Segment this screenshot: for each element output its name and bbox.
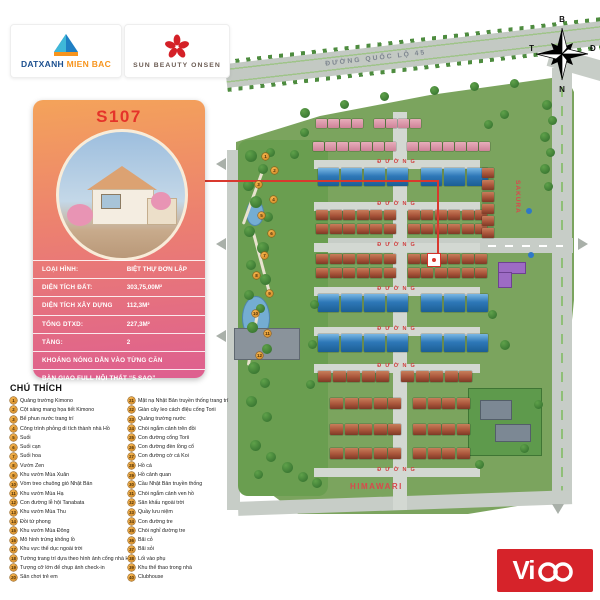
villa-unit[interactable] [374, 119, 385, 128]
villa-unit[interactable] [448, 268, 460, 278]
sports-complex-ground [468, 388, 542, 456]
street-gap [403, 398, 412, 409]
tree-icon [260, 378, 270, 388]
villa-unit[interactable] [330, 268, 342, 278]
legend-item: 5Suối [10, 433, 132, 442]
legend-item: 27Con đường cờ cá Koi [128, 452, 228, 461]
villa-unit[interactable] [428, 448, 441, 459]
villa-unit[interactable] [370, 210, 382, 220]
housing-row [482, 168, 494, 238]
leader-line-horizontal [178, 180, 438, 182]
legend-item: 3Bể phun nước trang trí [10, 415, 132, 424]
villa-unit[interactable] [482, 204, 494, 214]
legend-item: 19Tượng cỡ lớn để chụp ảnh check-in [10, 563, 132, 572]
housing-row [316, 254, 487, 264]
unit-spec-row: TỔNG DTXD:227,3M² [33, 315, 205, 333]
villa-unit[interactable] [421, 334, 442, 352]
legend-item-label: Bãi sỏi [138, 546, 154, 552]
villa-unit[interactable] [384, 224, 396, 234]
villa-unit[interactable] [413, 398, 426, 409]
villa-unit[interactable] [482, 192, 494, 202]
villa-unit[interactable] [455, 142, 466, 151]
tree-icon [500, 340, 510, 350]
villa-unit[interactable] [359, 448, 372, 459]
housing-row [316, 224, 487, 234]
villa-unit[interactable] [370, 224, 382, 234]
housing-row [313, 142, 490, 151]
tree-icon [548, 116, 557, 125]
villa-unit[interactable] [410, 119, 421, 128]
villa-unit[interactable] [313, 142, 324, 151]
villa-unit[interactable] [442, 424, 455, 435]
villa-unit[interactable] [374, 424, 387, 435]
legend-number-badge: 24 [128, 425, 135, 432]
sun-beauty-logo-text: SUN BEAUTY ONSEN [133, 62, 221, 69]
spec-value: 112,3M² [127, 302, 150, 309]
datxanh-triangle-icon [51, 33, 81, 57]
villa-unit[interactable] [421, 294, 442, 312]
road-exit-arrow-left [216, 330, 226, 342]
purple-amenity-building [498, 272, 512, 288]
villa-unit[interactable] [416, 371, 429, 382]
villa-unit[interactable] [428, 424, 441, 435]
park-poi-marker: 5 [258, 212, 265, 219]
villa-unit[interactable] [357, 254, 369, 264]
legend-number-badge: 32 [128, 499, 135, 506]
legend-number-badge: 18 [10, 555, 17, 562]
vico-watermark: Vi [497, 549, 593, 592]
sun-beauty-onsen-logo: SUN BEAUTY ONSEN [124, 24, 230, 78]
villa-unit[interactable] [330, 224, 342, 234]
legend-item: 30Cầu Nhật Bản truyền thống [128, 480, 228, 489]
villa-unit[interactable] [364, 334, 385, 352]
villa-unit[interactable] [448, 210, 460, 220]
legend-number-badge: 20 [10, 574, 17, 581]
legend-item-label: Quảng trường nước [138, 416, 186, 422]
villa-roof-shape [87, 166, 157, 190]
villa-unit[interactable] [401, 371, 414, 382]
legend-item-label: Chòi ngắm cảnh trên đồi [138, 426, 196, 432]
legend-number-badge: 31 [128, 490, 135, 497]
villa-unit[interactable] [387, 334, 408, 352]
tree-icon [310, 300, 319, 309]
indoor-sports-building [480, 400, 512, 420]
villa-unit[interactable] [467, 334, 488, 352]
legend-item-label: Công trình phỏng di tích thành nhà Hồ [20, 426, 110, 432]
legend-number-badge: 3 [10, 416, 17, 423]
tree-icon [244, 226, 255, 237]
tree-icon [300, 128, 309, 137]
tree-icon [246, 260, 256, 270]
street-gap [410, 334, 419, 352]
villa-unit[interactable] [333, 371, 346, 382]
legend-number-badge: 11 [10, 490, 17, 497]
amenity-dot-icon [528, 252, 534, 258]
villa-unit[interactable] [330, 448, 343, 459]
villa-unit[interactable] [462, 254, 474, 264]
villa-unit[interactable] [345, 424, 358, 435]
legend-item: 6Suối cạn [10, 442, 132, 451]
legend-item: 11Khu vườn Mùa Hạ [10, 489, 132, 498]
legend-number-badge: 4 [10, 425, 17, 432]
street-name-label: ĐƯỜNG [318, 363, 478, 369]
tree-icon [262, 412, 272, 422]
villa-unit[interactable] [316, 210, 328, 220]
villa-unit[interactable] [362, 371, 375, 382]
villa-unit[interactable] [413, 424, 426, 435]
park-poi-marker: 3 [255, 181, 262, 188]
tree-icon [484, 120, 493, 129]
villa-photo [56, 129, 188, 261]
villa-unit[interactable] [316, 254, 328, 264]
villa-unit[interactable] [428, 398, 441, 409]
villa-unit[interactable] [457, 448, 470, 459]
spec-value: 303,75,00M² [127, 284, 162, 291]
housing-row [318, 168, 488, 186]
legend-item: 16Mô hình trứng khổng lồ [10, 535, 132, 544]
legend-number-badge: 35 [128, 527, 135, 534]
tree-icon [520, 444, 529, 453]
street-name-label: ĐƯỜNG [318, 201, 478, 207]
tree-icon [254, 470, 263, 479]
villa-unit[interactable] [374, 448, 387, 459]
villa-unit[interactable] [388, 398, 401, 409]
villa-unit[interactable] [341, 294, 362, 312]
villa-unit[interactable] [467, 142, 478, 151]
legend-item-label: Con đường tre [138, 519, 173, 525]
compass-north-label: B [559, 15, 565, 24]
villa-unit[interactable] [482, 228, 494, 238]
villa-unit[interactable] [457, 424, 470, 435]
villa-unit[interactable] [444, 294, 465, 312]
legend-item: 13Khu vườn Mùa Thu [10, 508, 132, 517]
villa-unit[interactable] [318, 371, 331, 382]
spec-value: 227,3M² [127, 321, 150, 328]
compass-west-label: T [529, 44, 534, 53]
villa-unit[interactable] [421, 210, 433, 220]
compass-rose: B N Đ T [526, 10, 598, 98]
villa-unit[interactable] [388, 424, 401, 435]
villa-unit[interactable] [349, 142, 360, 151]
legend-item-label: Chòi ngắm cảnh ven hồ [138, 491, 194, 497]
legend-number-badge: 7 [10, 453, 17, 460]
legend-title: CHÚ THÍCH [10, 383, 246, 393]
tree-icon [290, 150, 299, 159]
compass-south-label: N [559, 85, 565, 94]
street-gap [410, 294, 419, 312]
vico-text: Vi [512, 555, 534, 586]
legend-item-label: Hồ cá [138, 463, 152, 469]
legend-item-label: Cầu Nhật Bản truyền thống [138, 481, 202, 487]
legend-item-label: Giàn cây leo cách điệu cổng Torii [138, 407, 216, 413]
villa-unit[interactable] [357, 210, 369, 220]
legend-number-badge: 8 [10, 462, 17, 469]
legend-item-label: Mô hình trứng khổng lồ [20, 537, 75, 543]
villa-unit[interactable] [357, 224, 369, 234]
spec-value: 2 [127, 339, 131, 346]
villa-unit[interactable] [407, 142, 418, 151]
villa-unit[interactable] [386, 119, 397, 128]
leader-line-vertical [437, 180, 439, 256]
villa-unit[interactable] [482, 168, 494, 178]
legend-item-label: Suối [20, 435, 31, 441]
villa-unit[interactable] [408, 210, 420, 220]
tree-icon [488, 310, 497, 319]
villa-unit[interactable] [359, 424, 372, 435]
villa-unit[interactable] [341, 334, 362, 352]
legend-number-badge: 21 [128, 397, 135, 404]
villa-unit[interactable] [384, 268, 396, 278]
villa-unit[interactable] [316, 224, 328, 234]
villa-unit[interactable] [421, 268, 433, 278]
villa-unit[interactable] [328, 119, 339, 128]
legend-item: 18Tường trang trí dựa theo hình ảnh cổng… [10, 554, 132, 563]
villa-unit[interactable] [419, 142, 430, 151]
spec-label: KHOÁNG NÓNG DẪN VÀO TỪNG CĂN [42, 357, 196, 364]
legend-number-badge: 19 [10, 564, 17, 571]
villa-unit[interactable] [361, 142, 372, 151]
villa-unit[interactable] [384, 210, 396, 220]
legend-item: 10Vòm treo chuông gió Nhật Bản [10, 480, 132, 489]
legend-item: 31Chòi ngắm cảnh ven hồ [128, 489, 228, 498]
tree-icon [430, 86, 439, 95]
legend-item-label: Mặt nạ Nhật Bản truyền thống trang trí [138, 398, 228, 404]
villa-unit[interactable] [374, 398, 387, 409]
street-gap [397, 210, 406, 220]
villa-unit[interactable] [467, 294, 488, 312]
zone-label-sakura: SAKURA [514, 180, 521, 214]
park-poi-marker: 9 [266, 290, 273, 297]
housing-row [318, 334, 488, 352]
villa-unit[interactable] [345, 398, 358, 409]
villa-unit[interactable] [376, 371, 389, 382]
villa-unit[interactable] [388, 448, 401, 459]
villa-unit[interactable] [408, 268, 420, 278]
road-exit-arrow-right [578, 238, 588, 250]
legend-number-badge: 40 [128, 574, 135, 581]
tree-icon [308, 340, 317, 349]
villa-unit[interactable] [387, 294, 408, 312]
villa-unit[interactable] [318, 168, 339, 186]
villa-unit[interactable] [442, 398, 455, 409]
legend-number-badge: 2 [10, 406, 17, 413]
villa-unit[interactable] [421, 224, 433, 234]
selected-unit-marker[interactable] [427, 253, 441, 267]
legend-item-label: Suối cạn [20, 444, 41, 450]
villa-unit[interactable] [384, 254, 396, 264]
villa-unit[interactable] [459, 371, 472, 382]
housing-row [330, 424, 470, 435]
road-exit-arrow-left [216, 238, 226, 250]
villa-unit[interactable] [345, 448, 358, 459]
legend-number-badge: 30 [128, 481, 135, 488]
tree-icon [475, 460, 484, 469]
legend-column-2: 21Mặt nạ Nhật Bản truyền thống trang trí… [128, 396, 228, 582]
tree-icon [244, 290, 254, 300]
pink-tree-shape [67, 204, 93, 226]
zone-label-himawari: HIMAWARI [350, 482, 403, 491]
legend-item: 21Mặt nạ Nhật Bản truyền thống trang trí [128, 396, 228, 405]
legend-number-badge: 9 [10, 472, 17, 479]
unit-spec-row: KHOÁNG NÓNG DẪN VÀO TỪNG CĂN [33, 351, 205, 369]
tree-icon [540, 164, 550, 174]
legend-item-label: Sân chơi trẻ em [20, 574, 58, 580]
tree-icon [266, 452, 276, 462]
villa-unit[interactable] [387, 168, 408, 186]
legend-item: 20Sân chơi trẻ em [10, 573, 132, 582]
legend-item: 2Cột sáng mang họa tiết Kimono [10, 405, 132, 414]
villa-unit[interactable] [445, 371, 458, 382]
tree-icon [540, 132, 550, 142]
park-poi-marker: 1 [262, 153, 269, 160]
datxanh-mien-bac-logo: DATXANH MIEN BAC [10, 24, 122, 78]
legend-item-label: Con đường cờ cá Koi [138, 453, 189, 459]
villa-unit[interactable] [462, 268, 474, 278]
tree-icon [470, 82, 479, 91]
street-gap [397, 254, 406, 264]
villa-window-shape [101, 194, 121, 209]
unit-spec-row: DIỆN TÍCH ĐẤT:303,75,00M² [33, 278, 205, 296]
road-exit-arrow-left [216, 158, 226, 170]
legend-item: 37Bãi sỏi [128, 545, 228, 554]
tree-icon [243, 180, 254, 191]
highway-name-label: ĐƯỜNG QUỐC LỘ 45 [325, 49, 427, 67]
villa-unit[interactable] [343, 254, 355, 264]
legend-item-label: Khu vườn Mùa Hạ [20, 491, 64, 497]
villa-unit[interactable] [337, 142, 348, 151]
villa-unit[interactable] [318, 294, 339, 312]
villa-unit[interactable] [444, 168, 465, 186]
legend-item: 9Khu vườn Mùa Xuân [10, 470, 132, 479]
villa-unit[interactable] [457, 398, 470, 409]
legend-number-badge: 39 [128, 564, 135, 571]
tree-icon [282, 462, 293, 473]
legend-item-label: Khu thể thao trong nhà [138, 565, 192, 571]
tree-icon [250, 196, 262, 208]
villa-unit[interactable] [421, 168, 442, 186]
villa-unit[interactable] [330, 398, 343, 409]
villa-unit[interactable] [316, 268, 328, 278]
villa-unit[interactable] [343, 210, 355, 220]
villa-unit[interactable] [385, 142, 396, 151]
villa-unit[interactable] [325, 142, 336, 151]
villa-unit[interactable] [442, 448, 455, 459]
legend-item-label: Cột sáng mang họa tiết Kimono [20, 407, 94, 413]
tree-icon [500, 110, 509, 119]
legend-number-badge: 38 [128, 555, 135, 562]
villa-unit[interactable] [398, 119, 409, 128]
legend-item-label: Sân khấu ngoài trời [138, 500, 184, 506]
legend-number-badge: 1 [10, 397, 17, 404]
tree-icon [380, 92, 389, 101]
villa-unit[interactable] [370, 268, 382, 278]
legend-item-label: Con đường lễ hội Tanabata [20, 500, 84, 506]
villa-unit[interactable] [435, 268, 447, 278]
street-gap [410, 168, 419, 186]
villa-unit[interactable] [448, 254, 460, 264]
spec-label: BÀN GIAO FULL NỘI THẤT “5 SAO” [42, 375, 196, 382]
villa-unit[interactable] [408, 254, 420, 264]
villa-unit[interactable] [482, 216, 494, 226]
street-gap [403, 448, 412, 459]
unit-spec-row: TẦNG:2 [33, 333, 205, 351]
villa-unit[interactable] [352, 119, 363, 128]
legend-item: 33Quầy lưu niệm [128, 508, 228, 517]
legend-item-label: Con đường cổng Torii [138, 435, 189, 441]
street-name-label: ĐƯỜNG [318, 286, 478, 292]
legend-number-badge: 22 [128, 406, 135, 413]
villa-unit[interactable] [443, 142, 454, 151]
villa-unit[interactable] [343, 268, 355, 278]
spec-value: BIỆT THỰ ĐƠN LẬP [127, 266, 187, 273]
villa-unit[interactable] [373, 142, 384, 151]
legend-item: 7Suối hoa [10, 452, 132, 461]
villa-unit[interactable] [482, 180, 494, 190]
legend-item: 24Chòi ngắm cảnh trên đồi [128, 424, 228, 433]
street-name-label: ĐƯỜNG [318, 159, 478, 165]
villa-unit[interactable] [413, 448, 426, 459]
villa-unit[interactable] [430, 371, 443, 382]
tree-icon [544, 182, 553, 191]
villa-unit[interactable] [444, 334, 465, 352]
villa-unit[interactable] [347, 371, 360, 382]
villa-unit[interactable] [462, 210, 474, 220]
villa-unit[interactable] [408, 224, 420, 234]
villa-unit[interactable] [475, 254, 487, 264]
street-gap [397, 142, 406, 151]
villa-unit[interactable] [364, 168, 385, 186]
villa-unit[interactable] [341, 168, 362, 186]
legend-item: 35Chòi nghỉ đường tre [128, 526, 228, 535]
legend-item-label: Vòm treo chuông gió Nhật Bản [20, 481, 92, 487]
villa-unit[interactable] [359, 398, 372, 409]
villa-unit[interactable] [431, 142, 442, 151]
legend-number-badge: 16 [10, 537, 17, 544]
villa-unit[interactable] [448, 224, 460, 234]
housing-row [316, 268, 487, 278]
housing-row [316, 119, 421, 128]
villa-unit[interactable] [357, 268, 369, 278]
tree-icon [534, 400, 543, 409]
legend-item-label: Chòi nghỉ đường tre [138, 528, 185, 534]
villa-unit[interactable] [370, 254, 382, 264]
villa-unit[interactable] [330, 210, 342, 220]
tree-icon [260, 274, 271, 285]
tree-icon [248, 362, 260, 374]
street-gap [391, 371, 400, 382]
park-poi-marker: 11 [264, 330, 271, 337]
housing-row [330, 448, 470, 459]
villa-unit[interactable] [318, 334, 339, 352]
tree-icon [250, 440, 261, 451]
legend-item-label: Bãi cỏ [138, 537, 153, 543]
villa-unit[interactable] [479, 142, 490, 151]
villa-unit[interactable] [316, 119, 327, 128]
road-exit-arrow-down [552, 504, 564, 514]
legend-number-badge: 6 [10, 444, 17, 451]
villa-unit[interactable] [330, 254, 342, 264]
tree-icon [246, 396, 257, 407]
pink-tree-shape [151, 192, 171, 210]
villa-unit[interactable] [330, 424, 343, 435]
legend-item: 25Con đường cổng Torii [128, 433, 228, 442]
villa-unit[interactable] [343, 224, 355, 234]
villa-unit[interactable] [364, 294, 385, 312]
villa-unit[interactable] [340, 119, 351, 128]
villa-unit[interactable] [462, 224, 474, 234]
villa-unit[interactable] [475, 268, 487, 278]
legend-number-badge: 33 [128, 509, 135, 516]
